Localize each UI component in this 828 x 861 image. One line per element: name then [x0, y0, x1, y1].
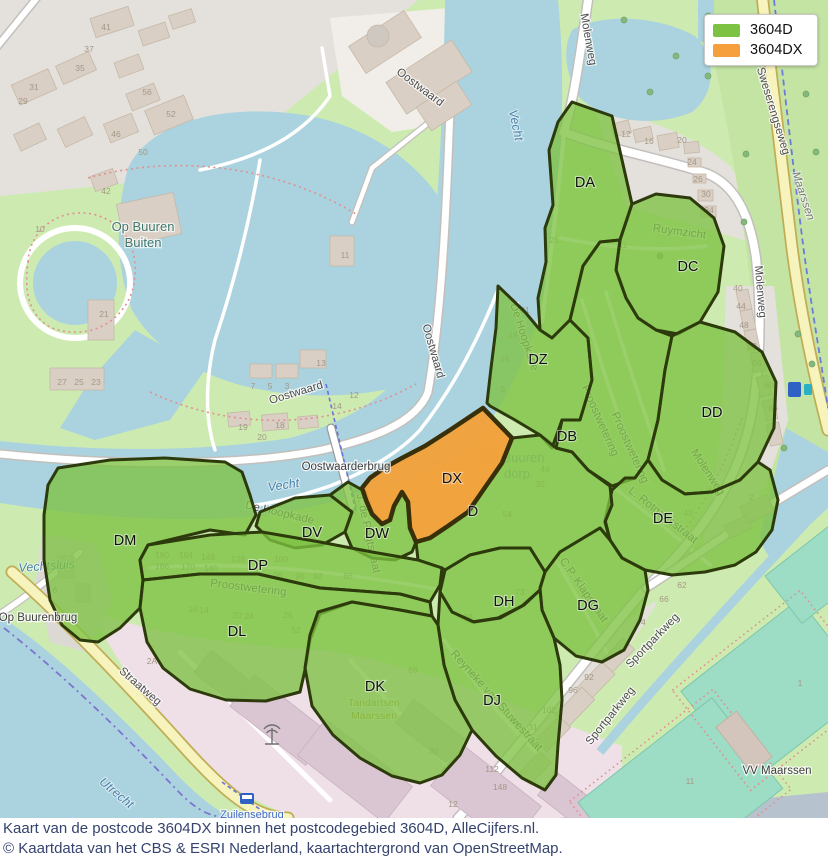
- map-caption: Kaart van de postcode 3604DX binnen het …: [0, 818, 828, 861]
- region-code-label-DC: DC: [678, 259, 699, 275]
- region-code-label-DX: DX: [442, 471, 462, 487]
- legend-label: 3604D: [750, 22, 793, 38]
- place-label: Oostwaarderbrug: [302, 461, 391, 473]
- house-number: 19: [238, 422, 248, 432]
- region-code-label-DJ: DJ: [483, 693, 501, 709]
- house-number: 40: [733, 283, 743, 293]
- house-number: 12: [349, 390, 359, 400]
- house-number: 44: [736, 301, 746, 311]
- house-number: 12: [448, 799, 458, 809]
- map-canvas: 4137353129565246504210212725231311753191…: [0, 0, 828, 818]
- house-number: 62: [677, 580, 687, 590]
- house-number: 52: [166, 109, 176, 119]
- house-number: 21: [99, 309, 109, 319]
- house-number: 37: [84, 44, 94, 54]
- house-number: 25: [74, 377, 84, 387]
- region-code-label-DL: DL: [228, 624, 247, 640]
- legend-item-3604dx: 3604DX: [713, 40, 809, 60]
- house-number: 35: [75, 63, 85, 73]
- house-number: 11: [686, 776, 695, 786]
- house-number: 16: [644, 136, 654, 146]
- place-label: Op Buuren: [112, 219, 175, 234]
- house-number: 20: [257, 432, 267, 442]
- region-code-label-DW: DW: [365, 526, 389, 542]
- house-number: 29: [18, 96, 28, 106]
- legend-item-3604d: 3604D: [713, 20, 809, 40]
- house-number: 24: [687, 157, 697, 167]
- region-code-label-DD: DD: [702, 405, 723, 421]
- ev-charging-icon: [788, 382, 812, 397]
- house-number: 50: [138, 147, 148, 157]
- region-code-label-DV: DV: [302, 525, 322, 541]
- place-label: Op Buurenbrug: [0, 612, 77, 624]
- house-number: 31: [29, 82, 39, 92]
- house-number: 46: [111, 129, 121, 139]
- house-number: 112: [485, 764, 499, 774]
- house-number: 10: [35, 224, 45, 234]
- house-number: 41: [101, 22, 111, 32]
- place-label: Zuilensebrug: [220, 809, 284, 818]
- region-code-label-DZ: DZ: [528, 352, 547, 368]
- region-code-label-DM: DM: [114, 533, 137, 549]
- region-code-label-DA: DA: [575, 175, 595, 191]
- region-code-label-DB: DB: [557, 429, 577, 445]
- house-number: 12: [621, 129, 631, 139]
- house-number: 14: [332, 401, 342, 411]
- house-number: 148: [493, 782, 507, 792]
- region-code-label-DE: DE: [653, 511, 673, 527]
- caption-line-1: Kaart van de postcode 3604DX binnen het …: [3, 819, 828, 839]
- house-number: 11: [341, 250, 350, 260]
- house-number: 42: [101, 186, 111, 196]
- house-number: 48: [739, 320, 749, 330]
- region-code-label-DH: DH: [494, 594, 515, 610]
- house-number: 26: [693, 174, 703, 184]
- house-number: 92: [584, 672, 594, 682]
- region-code-label-DP: DP: [248, 558, 268, 574]
- map-legend: 3604D 3604DX: [704, 14, 818, 66]
- legend-swatch-orange: [713, 44, 740, 57]
- house-number: 30: [701, 189, 711, 199]
- house-number: 7: [251, 381, 256, 391]
- region-code-label-D: D: [468, 504, 478, 520]
- house-number: 56: [142, 87, 152, 97]
- house-number: 66: [659, 594, 669, 604]
- bus-stop-icon: [240, 793, 254, 804]
- legend-swatch-green: [713, 24, 740, 37]
- region-code-label-DG: DG: [577, 598, 599, 614]
- house-number: 18: [275, 420, 285, 430]
- place-label: VV Maarssen: [742, 765, 811, 777]
- place-label: Buiten: [125, 235, 162, 250]
- house-number: 96: [568, 685, 578, 695]
- house-number: 13: [316, 358, 326, 368]
- house-number: 1: [798, 678, 803, 688]
- house-number: 5: [268, 381, 273, 391]
- caption-line-2: © Kaartdata van het CBS & ESRI Nederland…: [3, 839, 828, 859]
- postcode-map-page: 4137353129565246504210212725231311753191…: [0, 0, 828, 861]
- region-code-label-DK: DK: [365, 679, 385, 695]
- house-number: 23: [91, 377, 101, 387]
- house-number: 27: [57, 377, 67, 387]
- house-number: 20: [677, 135, 687, 145]
- legend-label: 3604DX: [750, 42, 802, 58]
